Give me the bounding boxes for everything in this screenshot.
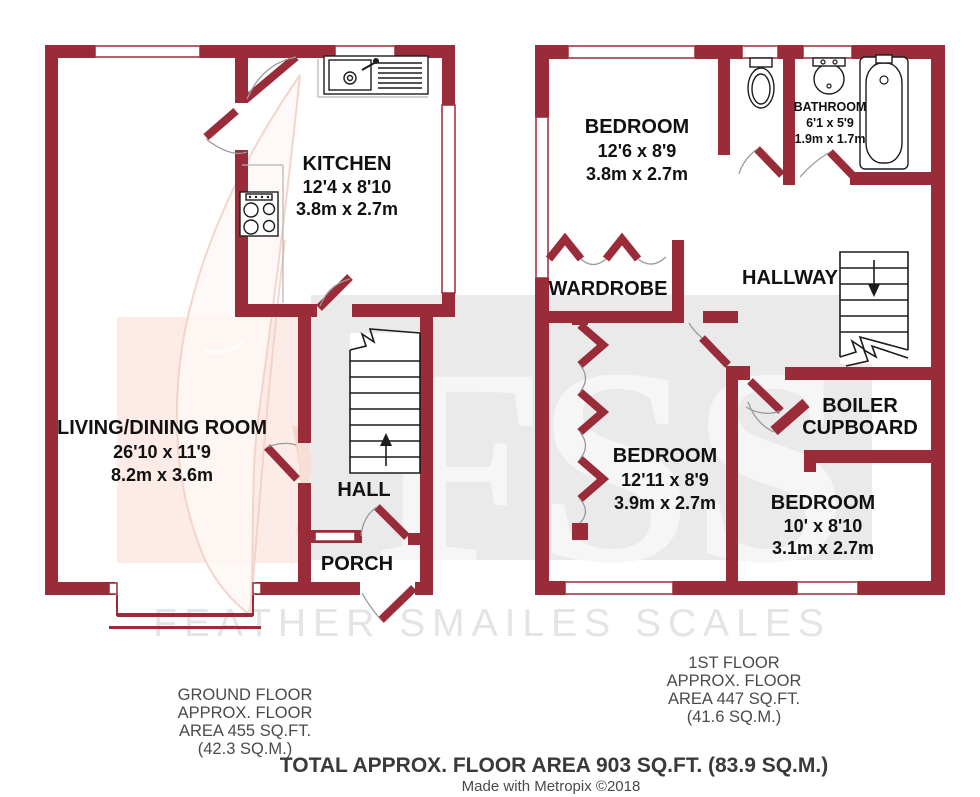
basin-icon xyxy=(813,58,845,94)
room-dims-living-imperial: 26'10 x 11'9 xyxy=(113,442,211,462)
room-dims-bedroom-back-metric: 3.1m x 2.7m xyxy=(772,538,874,558)
room-dims-bathroom-metric: 1.9m x 1.7m xyxy=(795,132,866,146)
room-label-bedroom-front: BEDROOM xyxy=(585,116,689,138)
room-label-living-dining: LIVING/DINING ROOM xyxy=(57,417,267,439)
ground-floor-caption: GROUND FLOOR APPROX. FLOOR AREA 455 SQ.F… xyxy=(178,686,313,758)
room-label-bathroom: BATHROOM xyxy=(794,100,867,114)
first-caption-line1: 1ST FLOOR xyxy=(688,654,779,672)
floorplan-page: F S S FEATHER SMAILES SCALES xyxy=(0,0,980,797)
room-dims-bedroom-middle-metric: 3.9m x 2.7m xyxy=(614,493,716,513)
ground-caption-line3: AREA 455 SQ.FT. xyxy=(179,722,311,740)
room-label-boiler: BOILER xyxy=(822,395,898,417)
first-floor-caption: 1ST FLOOR APPROX. FLOOR AREA 447 SQ.FT. … xyxy=(667,654,802,726)
room-label-porch: PORCH xyxy=(321,553,393,575)
room-dims-bedroom-front-metric: 3.8m x 2.7m xyxy=(586,164,688,184)
first-caption-line4: (41.6 SQ.M.) xyxy=(687,708,781,726)
room-label-hall: HALL xyxy=(337,479,390,501)
floorplan-image: F S S FEATHER SMAILES SCALES xyxy=(0,0,980,797)
watermark-brand-text: FEATHER SMAILES SCALES xyxy=(153,602,831,645)
ground-floor-stairs xyxy=(350,329,420,473)
first-caption-line2: APPROX. FLOOR xyxy=(667,672,802,690)
first-floor-stairs xyxy=(840,252,908,366)
room-dims-bedroom-middle-imperial: 12'11 x 8'9 xyxy=(621,470,709,490)
first-caption-line3: AREA 447 SQ.FT. xyxy=(668,690,800,708)
stove-icon xyxy=(240,192,278,236)
room-label-kitchen: KITCHEN xyxy=(303,153,392,175)
room-dims-living-metric: 8.2m x 3.6m xyxy=(111,465,213,485)
kitchen-sink-icon xyxy=(324,56,428,94)
room-dims-kitchen-imperial: 12'4 x 8'10 xyxy=(303,177,392,197)
room-label-wardrobe: WARDROBE xyxy=(549,278,668,300)
watermark-logo: F S S FEATHER SMAILES SCALES xyxy=(117,75,872,645)
metropix-credit: Made with Metropix ©2018 xyxy=(462,778,641,795)
total-floor-area: TOTAL APPROX. FLOOR AREA 903 SQ.FT. (83.… xyxy=(280,754,828,777)
ground-caption-line1: GROUND FLOOR xyxy=(178,686,313,704)
room-label-bedroom-middle: BEDROOM xyxy=(613,445,717,467)
room-label-cupboard: CUPBOARD xyxy=(802,417,918,439)
room-dims-bedroom-front-imperial: 12'6 x 8'9 xyxy=(598,141,677,161)
room-dims-bathroom-imperial: 6'1 x 5'9 xyxy=(806,116,854,130)
room-dims-bedroom-back-imperial: 10' x 8'10 xyxy=(784,516,863,536)
ground-caption-line4: (42.3 SQ.M.) xyxy=(198,740,292,758)
room-label-hallway: HALLWAY xyxy=(742,267,839,289)
toilet-icon xyxy=(748,58,774,108)
bathtub-icon xyxy=(860,55,908,169)
room-label-bedroom-back: BEDROOM xyxy=(771,492,875,514)
ground-caption-line2: APPROX. FLOOR xyxy=(178,704,313,722)
wardrobe-bifold-doors xyxy=(549,239,666,265)
room-dims-kitchen-metric: 3.8m x 2.7m xyxy=(296,199,398,219)
